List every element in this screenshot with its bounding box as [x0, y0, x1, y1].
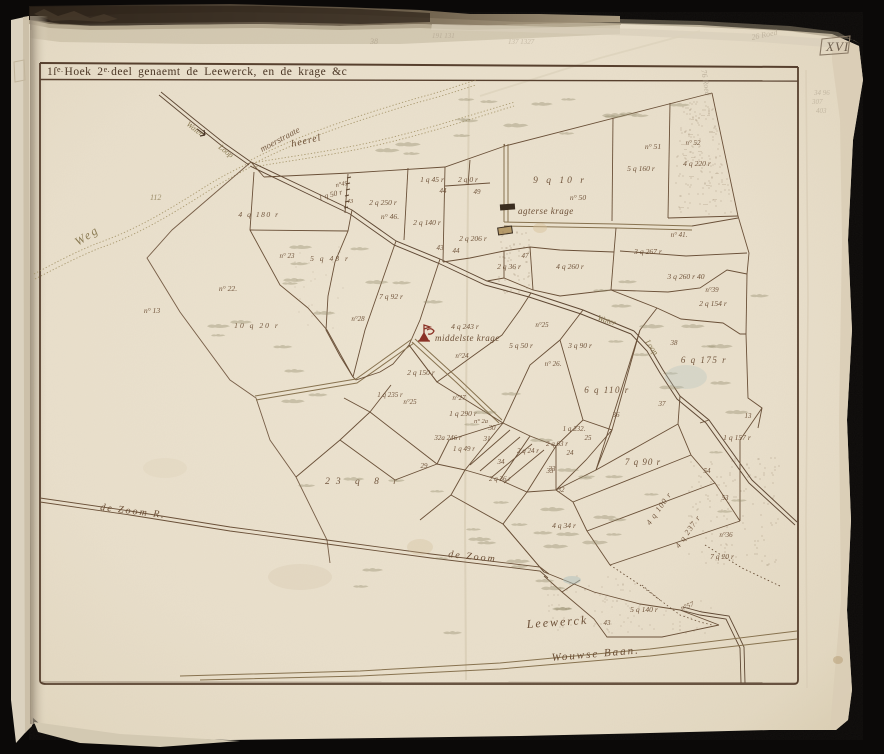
- svg-text:n° 52: n° 52: [685, 139, 701, 147]
- svg-text:2 q 140 r: 2 q 140 r: [413, 218, 441, 227]
- svg-text:2 q 0 r: 2 q 0 r: [458, 175, 478, 184]
- svg-text:32: 32: [557, 486, 566, 494]
- svg-text:1ſe.Hoek 2e.deel genaemt de: 1ſe.Hoek 2e.deel genaemt de Leewerck, en…: [47, 65, 347, 78]
- svg-text:112: 112: [150, 193, 161, 202]
- svg-text:n°24: n°24: [455, 352, 469, 360]
- svg-text:2 q 154 r: 2 q 154 r: [699, 299, 727, 308]
- svg-text:4 q 260 r: 4 q 260 r: [556, 262, 584, 271]
- svg-text:n° 13: n° 13: [144, 306, 161, 315]
- svg-text:n°27: n°27: [452, 394, 466, 402]
- svg-text:191 131: 191 131: [432, 32, 455, 40]
- svg-text:34: 34: [497, 458, 506, 466]
- svg-text:middelste krage: middelste krage: [435, 333, 500, 343]
- svg-text:37: 37: [658, 400, 667, 408]
- svg-text:1 q 45 r: 1 q 45 r: [420, 175, 444, 184]
- svg-text:5 q 160 r: 5 q 160 r: [627, 164, 655, 173]
- svg-text:43: 43: [347, 198, 354, 205]
- svg-text:2 q 36 r: 2 q 36 r: [497, 262, 521, 271]
- svg-text:30: 30: [488, 424, 497, 432]
- svg-text:n° 50: n° 50: [570, 193, 587, 202]
- svg-text:44: 44: [453, 247, 461, 255]
- svg-text:n° 22.: n° 22.: [219, 284, 237, 293]
- svg-text:137 1327: 137 1327: [508, 38, 535, 46]
- svg-text:307: 307: [811, 98, 823, 106]
- svg-text:1 q 49 r: 1 q 49 r: [453, 445, 475, 453]
- svg-text:2 q 206 r: 2 q 206 r: [459, 234, 487, 243]
- svg-text:n°25: n°25: [403, 398, 417, 406]
- svg-text:43: 43: [437, 244, 445, 252]
- svg-text:49: 49: [474, 188, 482, 196]
- svg-text:n°39: n°39: [705, 286, 719, 294]
- svg-text:7 q 92 r: 7 q 92 r: [379, 292, 403, 301]
- svg-text:34 96: 34 96: [813, 89, 830, 97]
- svg-text:4 q 180 r: 4 q 180 r: [238, 210, 279, 219]
- svg-text:2 q 36 r: 2 q 36 r: [489, 475, 511, 483]
- svg-text:13: 13: [745, 412, 753, 420]
- svg-text:6 q 175 r: 6 q 175 r: [681, 355, 727, 365]
- svg-text:n°25: n°25: [535, 321, 549, 329]
- svg-text:n°28: n°28: [351, 315, 365, 323]
- svg-text:29: 29: [421, 462, 429, 470]
- svg-text:2 q 250 r: 2 q 250 r: [369, 198, 397, 207]
- svg-text:5 q 48 r: 5 q 48 r: [310, 254, 350, 263]
- svg-text:6 q 110 r: 6 q 110 r: [584, 385, 630, 395]
- svg-text:38: 38: [369, 37, 378, 46]
- svg-text:2 q 150 r: 2 q 150 r: [407, 368, 435, 377]
- svg-text:n° 51: n° 51: [645, 142, 661, 151]
- svg-text:3 q 260 r 40: 3 q 260 r 40: [666, 272, 704, 281]
- svg-text:44: 44: [440, 187, 448, 195]
- svg-text:3 q 267 r: 3 q 267 r: [633, 247, 662, 256]
- svg-text:25: 25: [585, 434, 593, 442]
- svg-text:24: 24: [567, 449, 575, 457]
- svg-text:36: 36: [612, 411, 621, 419]
- svg-text:XVI: XVI: [825, 39, 849, 54]
- svg-text:1 q 157 r: 1 q 157 r: [723, 433, 751, 442]
- svg-text:n° 23: n° 23: [279, 252, 295, 260]
- svg-text:7 q 90 r: 7 q 90 r: [625, 457, 661, 467]
- svg-text:2 q 24 r: 2 q 24 r: [517, 447, 539, 455]
- svg-text:33: 33: [546, 467, 555, 475]
- svg-text:n° 26.: n° 26.: [545, 360, 562, 368]
- svg-text:38: 38: [670, 339, 679, 347]
- svg-text:n° 46.: n° 46.: [381, 212, 399, 221]
- svg-text:54: 54: [704, 467, 712, 475]
- svg-text:1 q 290 r: 1 q 290 r: [449, 409, 477, 418]
- svg-text:4 q 243 r: 4 q 243 r: [451, 322, 479, 331]
- svg-text:agterse krage: agterse krage: [518, 206, 574, 216]
- svg-text:31: 31: [483, 435, 491, 443]
- svg-text:4 q 220 r: 4 q 220 r: [683, 159, 711, 168]
- svg-text:1 q 235 r: 1 q 235 r: [377, 391, 403, 399]
- svg-text:9 q 10 r: 9 q 10 r: [533, 176, 587, 186]
- svg-text:32a 246 r: 32a 246 r: [433, 434, 462, 442]
- svg-text:43: 43: [604, 619, 612, 627]
- svg-text:3 q 90 r: 3 q 90 r: [567, 341, 592, 350]
- svg-text:1 q 232.: 1 q 232.: [563, 425, 586, 433]
- svg-text:5 q 140 r: 5 q 140 r: [630, 605, 658, 614]
- svg-text:n° 41.: n° 41.: [671, 231, 688, 239]
- svg-text:23 q 8 r: 23 q 8 r: [325, 477, 403, 487]
- svg-text:403: 403: [816, 107, 827, 115]
- svg-text:n°36: n°36: [719, 531, 733, 539]
- svg-text:53: 53: [722, 494, 730, 502]
- svg-text:5 q 50 r: 5 q 50 r: [509, 341, 533, 350]
- svg-text:4 q 34 r: 4 q 34 r: [552, 521, 576, 530]
